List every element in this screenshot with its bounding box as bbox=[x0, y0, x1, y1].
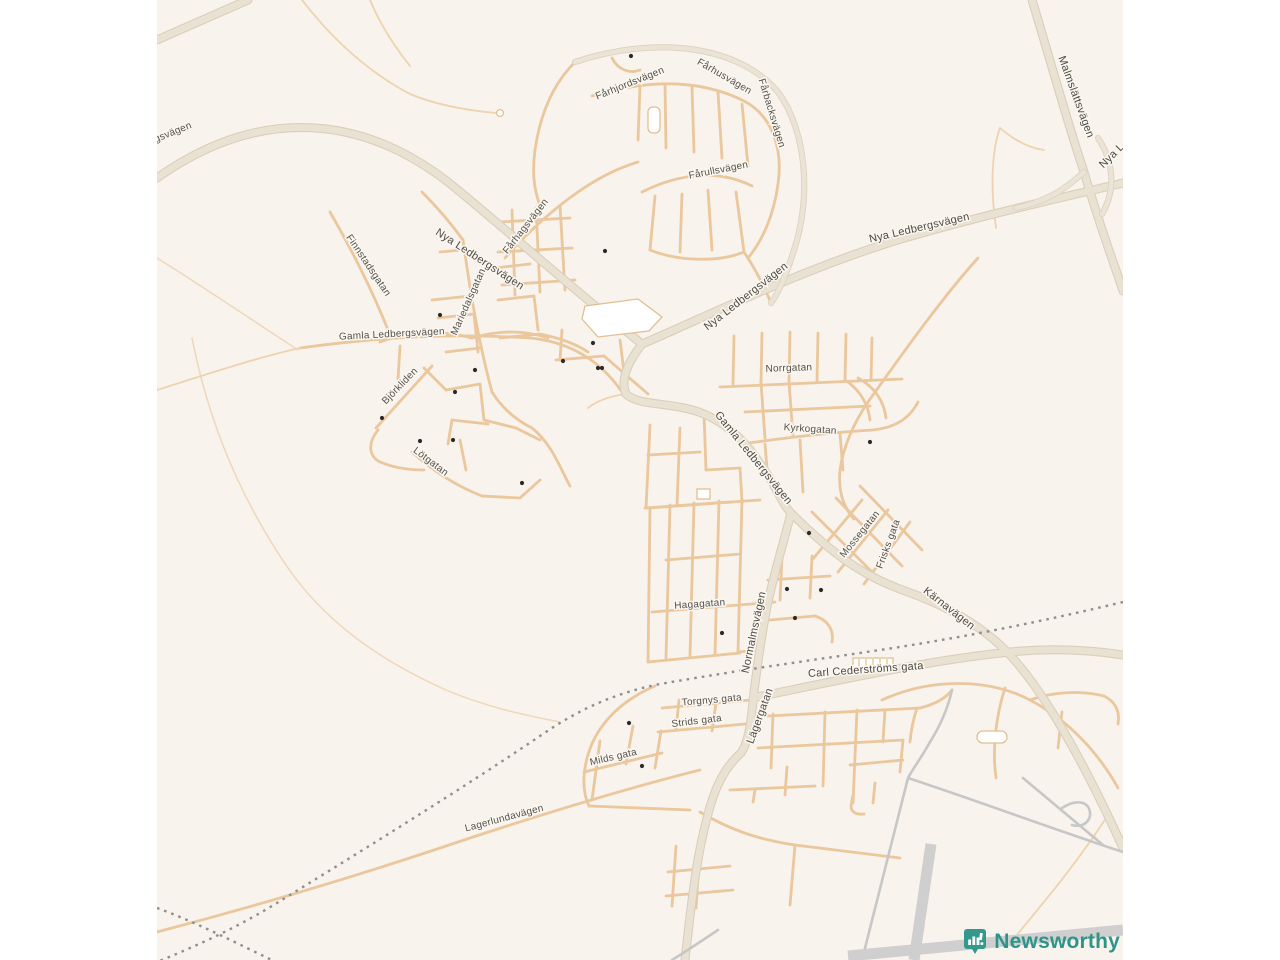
street-label: Lötgatan bbox=[411, 445, 450, 478]
poi-dot bbox=[819, 588, 823, 592]
street-label: Mossegatan bbox=[838, 509, 882, 560]
street-label: Kyrkogatan bbox=[783, 422, 837, 437]
poi-dot bbox=[453, 390, 457, 394]
street-label: Kärnavägen bbox=[921, 585, 977, 633]
poi-dot bbox=[591, 341, 595, 345]
street-label: Gamla Ledbergsvägen bbox=[712, 409, 794, 507]
poi-dot bbox=[868, 440, 872, 444]
street-label: Hagagatan bbox=[674, 597, 726, 612]
newsworthy-attribution[interactable]: Newsworthy bbox=[963, 928, 1120, 955]
poi-dot bbox=[603, 249, 607, 253]
poi-dot bbox=[438, 313, 442, 317]
poi-dot bbox=[380, 416, 384, 420]
poi-dot bbox=[785, 587, 789, 591]
street-label: Torgnys gata bbox=[681, 692, 742, 708]
poi-dot bbox=[720, 631, 724, 635]
poi-dot bbox=[629, 54, 633, 58]
poi-dot bbox=[473, 368, 477, 372]
poi-dot bbox=[451, 438, 455, 442]
street-label: Norrgatan bbox=[765, 362, 812, 375]
poi-dot bbox=[600, 366, 604, 370]
poi-dot bbox=[596, 366, 600, 370]
newsworthy-logo-text: Newsworthy bbox=[994, 930, 1120, 954]
major-road-network bbox=[157, 0, 1123, 960]
newsworthy-logo-icon bbox=[963, 928, 987, 955]
airfield-roads bbox=[672, 690, 1123, 960]
street-label: gsvägen bbox=[157, 120, 193, 145]
street-label: Fårhusvägen bbox=[695, 56, 754, 97]
map-viewport[interactable]: gsvägenNya LedbergsvägenNya Ledbergsväge… bbox=[157, 0, 1123, 960]
poi-dot bbox=[807, 531, 811, 535]
map-screenshot: gsvägenNya LedbergsvägenNya Ledbergsväge… bbox=[0, 0, 1280, 960]
street-label: Gamla Ledbergsvägen bbox=[339, 326, 445, 343]
poi-dots bbox=[380, 54, 872, 768]
poi-dot bbox=[418, 439, 422, 443]
street-label: Finnstadsgatan bbox=[343, 233, 392, 299]
poi-dot bbox=[561, 359, 565, 363]
street-labels: gsvägenNya LedbergsvägenNya Ledbergsväge… bbox=[157, 54, 1123, 834]
minor-road-network bbox=[157, 0, 1118, 936]
map-svg[interactable]: gsvägenNya LedbergsvägenNya Ledbergsväge… bbox=[157, 0, 1123, 960]
poi-dot bbox=[640, 764, 644, 768]
poi-dot bbox=[793, 616, 797, 620]
poi-dot bbox=[520, 481, 524, 485]
poi-dot bbox=[627, 721, 631, 725]
street-label: Fårullsvägen bbox=[688, 158, 749, 181]
